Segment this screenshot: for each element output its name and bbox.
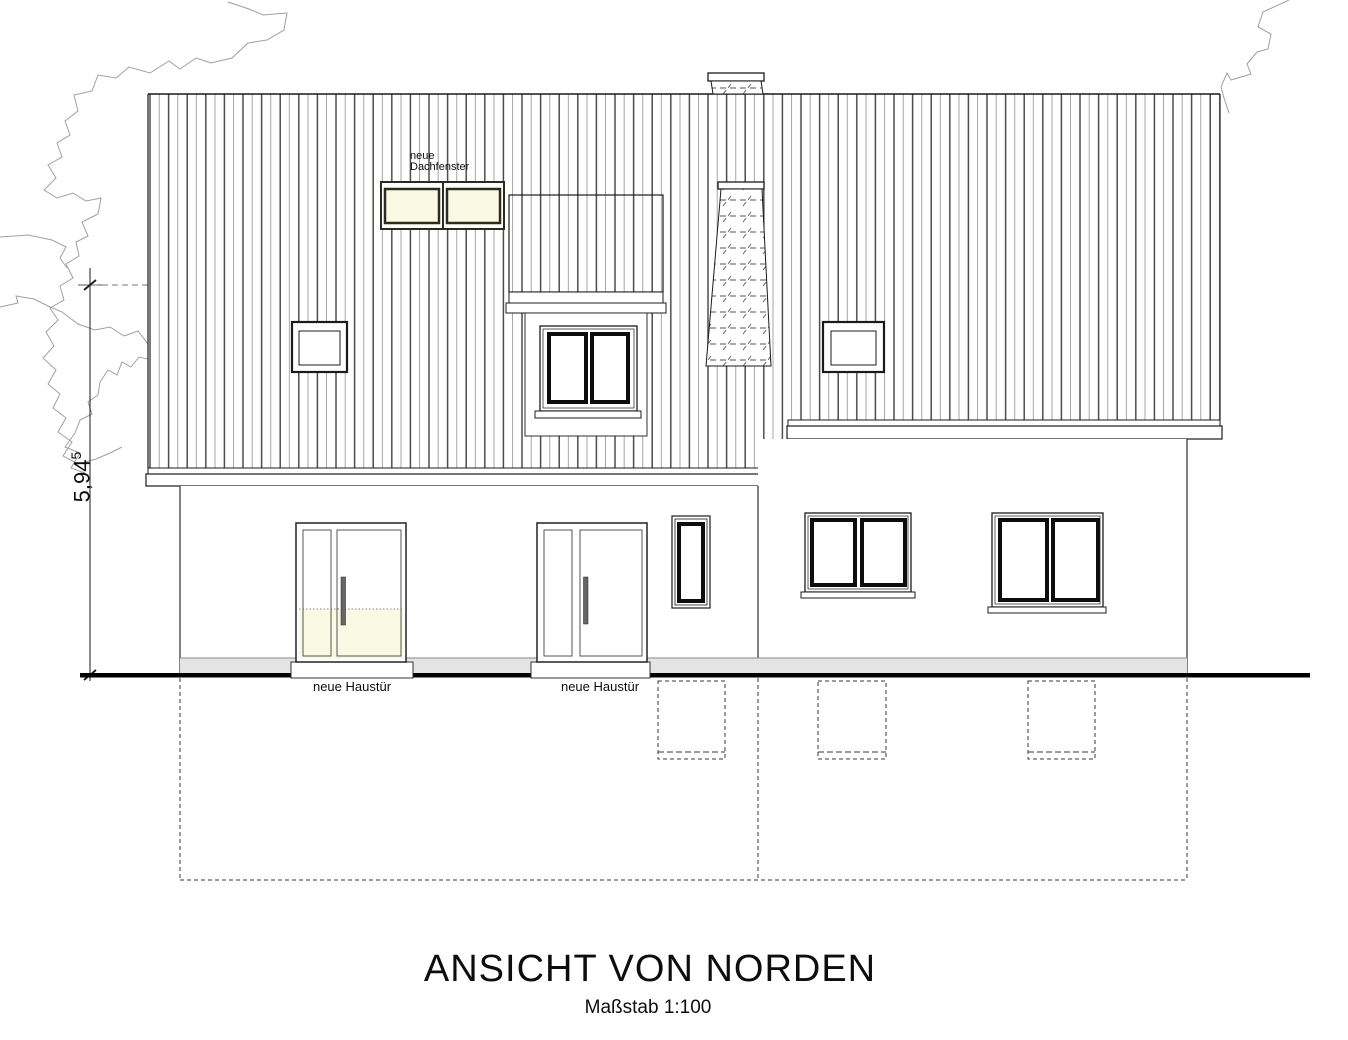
- wall-left-section: [180, 486, 758, 675]
- foundation-pad-1: [658, 681, 725, 759]
- new-roof-window-pane-left: [385, 189, 439, 223]
- dimension-superscript: 5: [68, 452, 84, 460]
- foundation-outline: [180, 678, 1187, 880]
- new-roof-windows: [381, 182, 504, 229]
- drawing-scale-label: Maßstab 1:100: [448, 997, 848, 1019]
- threshold-left-door: [291, 662, 413, 678]
- left-entrance-door: [296, 523, 406, 662]
- elevation-drawing-sheet: neue Dachfenster neue Haustür neue Haust…: [0, 0, 1348, 1040]
- eave-left: [146, 468, 793, 486]
- tree-outline-top-right: [1221, 0, 1289, 113]
- center-door-handle: [584, 577, 589, 624]
- drawing-canvas: [0, 0, 1348, 1040]
- dormer-window-sill: [535, 411, 641, 418]
- window-pair-right: [988, 513, 1106, 613]
- chimney-cap: [708, 73, 764, 81]
- left-door-label: neue Haustür: [292, 679, 412, 694]
- roof-window-right: [823, 322, 884, 372]
- height-dimension-label: 5,945: [62, 407, 90, 547]
- window-pair-left: [801, 513, 915, 598]
- dormer-fascia-upper: [509, 292, 663, 303]
- roof-windows-label: neue Dachfenster: [410, 151, 469, 173]
- drawing-title: ANSICHT VON NORDEN: [302, 948, 998, 991]
- threshold-center-door: [531, 662, 650, 678]
- eave-right: [787, 420, 1222, 439]
- dormer-fascia-lower: [506, 303, 666, 313]
- dormer-window: [535, 326, 641, 418]
- chimney-band: [718, 182, 764, 189]
- window-sill: [988, 607, 1106, 613]
- center-entrance-door: [537, 523, 647, 662]
- dormer: [506, 195, 666, 436]
- narrow-window: [672, 516, 710, 608]
- chimney-head: [711, 81, 763, 94]
- left-door-glass-lower: [299, 609, 403, 659]
- dormer-roof: [509, 195, 663, 292]
- window-sill: [801, 592, 915, 598]
- center-door-label: neue Haustür: [540, 679, 660, 694]
- new-roof-window-pane-right: [447, 189, 500, 223]
- main-roof: [148, 94, 1220, 468]
- left-door-handle: [341, 577, 346, 625]
- foundation-pad-2: [818, 681, 886, 759]
- roof-window-left: [292, 322, 347, 372]
- foundation-pad-3: [1028, 681, 1095, 759]
- ground-line: [80, 673, 1310, 678]
- dimension-value: 5,94: [69, 459, 94, 502]
